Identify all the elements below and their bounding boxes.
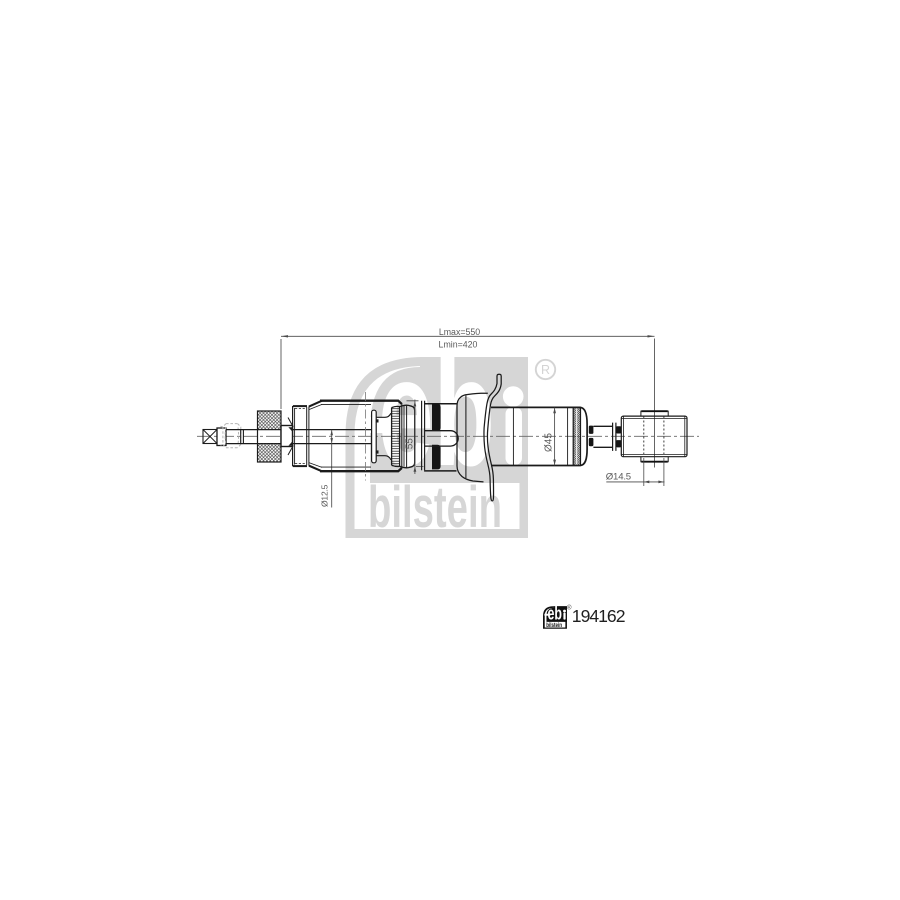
svg-text:Ø45: Ø45 bbox=[544, 433, 555, 452]
svg-text:Ø14.5: Ø14.5 bbox=[606, 472, 631, 483]
svg-text:bilstein: bilstein bbox=[368, 476, 502, 540]
svg-text:194162: 194162 bbox=[572, 606, 625, 626]
svg-text:bilstein: bilstein bbox=[546, 623, 562, 630]
svg-text:Lmax=550: Lmax=550 bbox=[439, 327, 480, 337]
svg-text:Lmin=420: Lmin=420 bbox=[439, 339, 478, 349]
svg-text:55: 55 bbox=[405, 438, 416, 450]
svg-text:Ø12.5: Ø12.5 bbox=[320, 484, 330, 507]
svg-text:R: R bbox=[541, 363, 550, 377]
